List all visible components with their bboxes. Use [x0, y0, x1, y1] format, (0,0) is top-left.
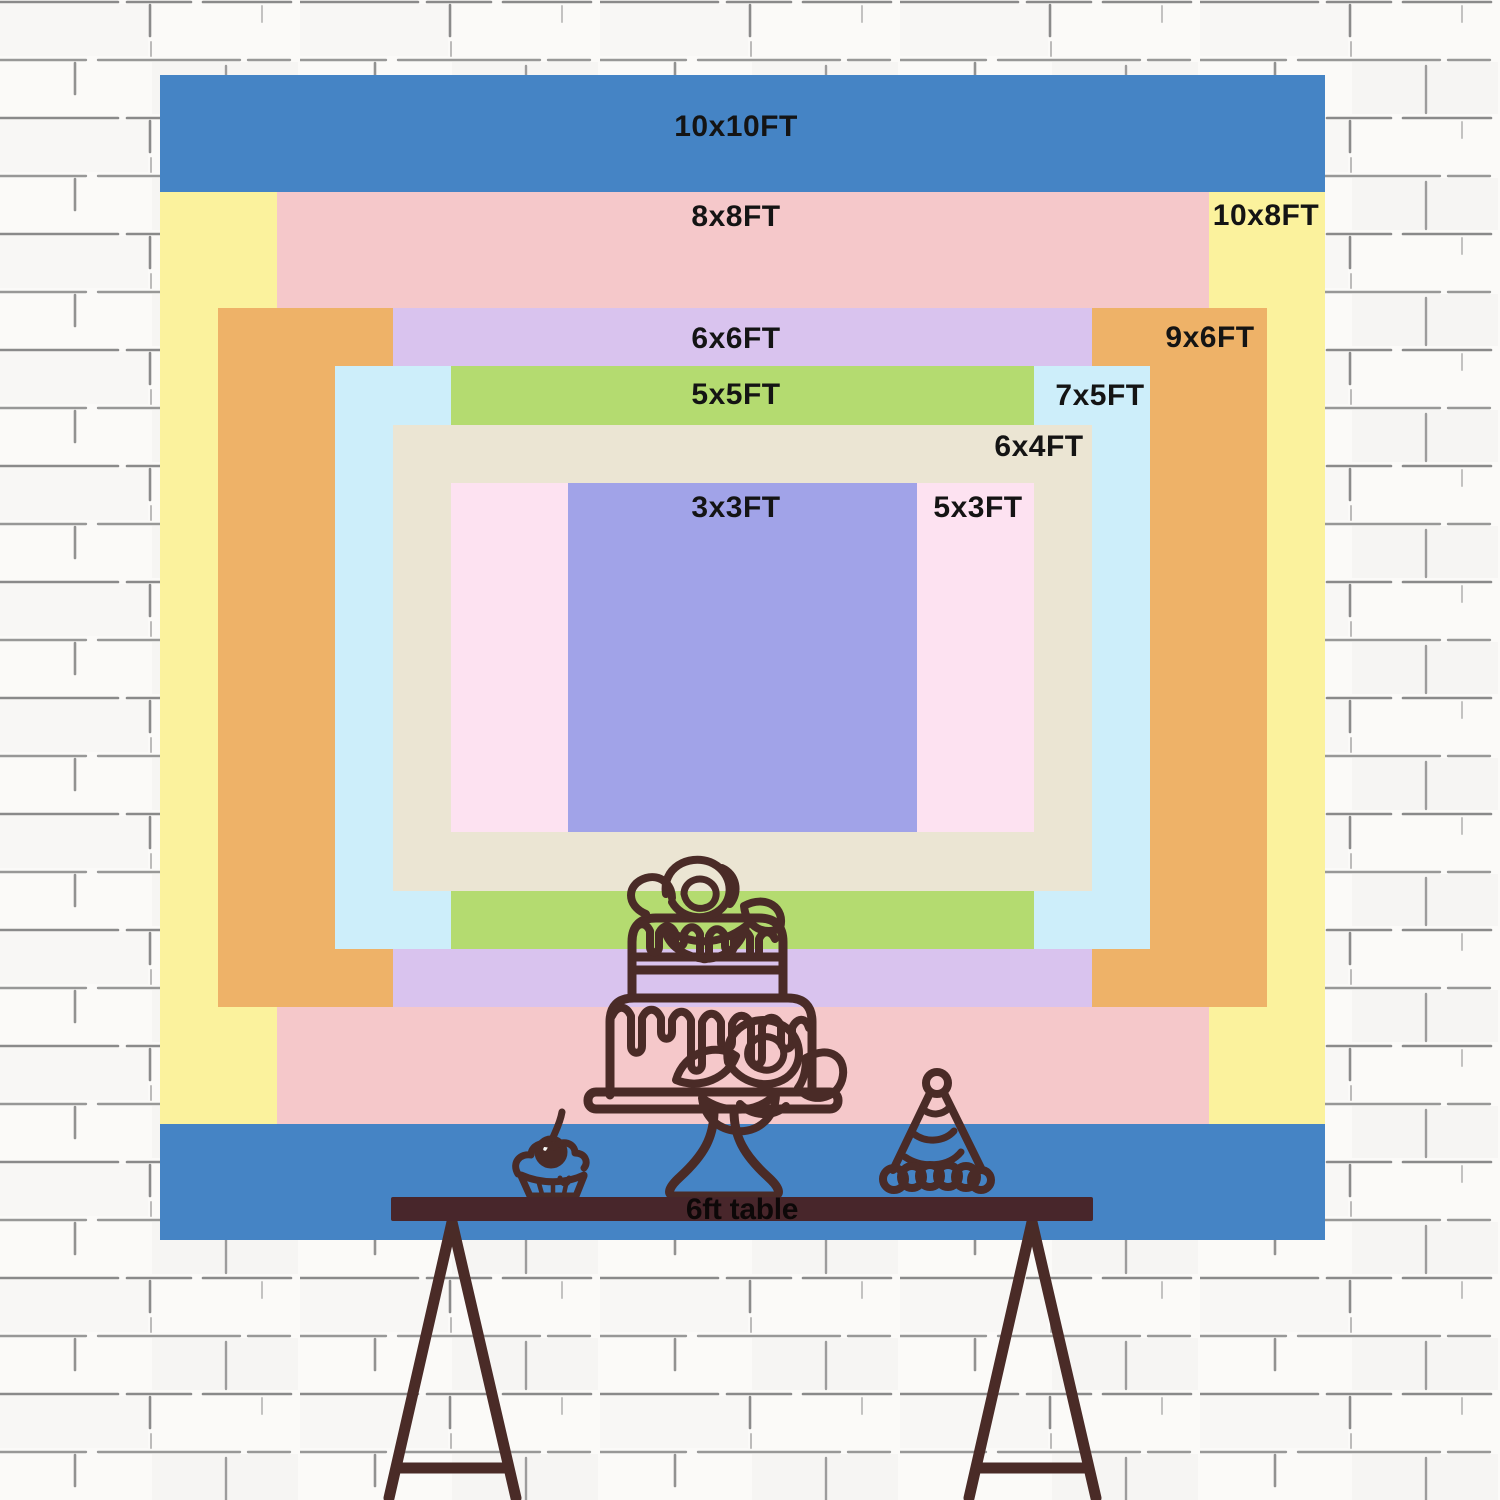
size-composite — [0, 0, 1500, 1500]
backdrop-size-chart: 10x10FT10x8FT8x8FT9x6FT6x6FT7x5FT5x5FT6x… — [0, 0, 1500, 1500]
size-rect-3x3 — [568, 483, 918, 833]
table-label: 6ft table — [686, 1193, 798, 1227]
